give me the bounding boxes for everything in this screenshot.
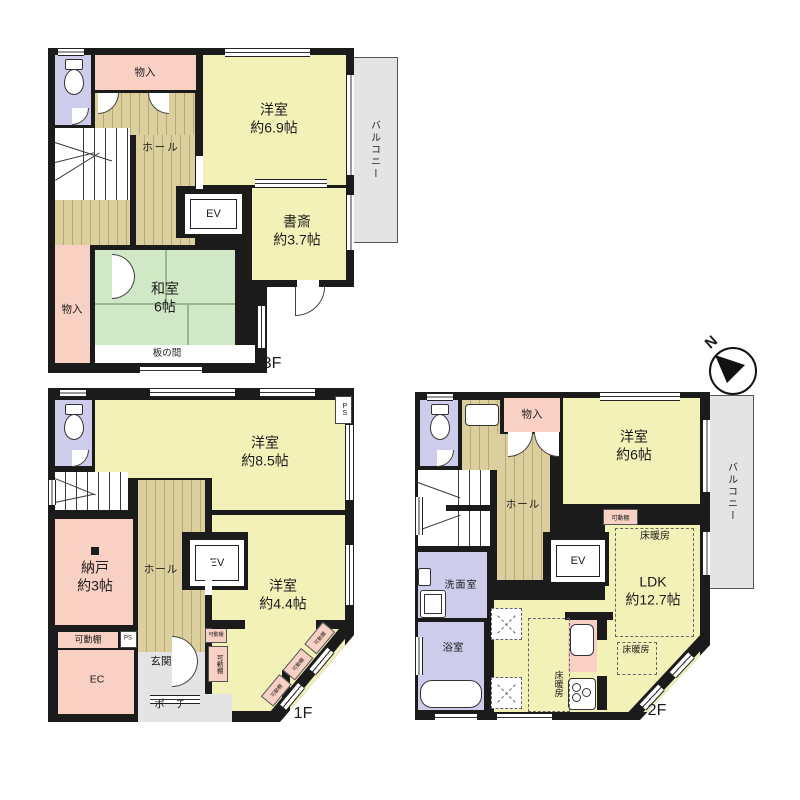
window xyxy=(435,713,477,722)
label-hall-2f: ホール xyxy=(506,498,541,511)
label-itanoma-3f: 板の間 xyxy=(153,348,182,360)
door-opening xyxy=(205,560,212,595)
label-ec-1f: EC xyxy=(90,673,105,686)
window xyxy=(600,392,680,401)
burner-icon xyxy=(572,693,581,702)
label-porch-1f: ポーチ xyxy=(154,698,186,711)
floorplan-3f: EV 物入 ホール 洋室 約6.9帖 書斎 約3.7帖 和室 6帖 xyxy=(48,48,354,373)
window xyxy=(427,393,453,401)
label-nando-1f: 納戸 約3帖 xyxy=(77,560,113,595)
stairs-2f xyxy=(418,470,490,546)
stove-icon-2f xyxy=(568,678,596,710)
kitchen-wall xyxy=(597,676,607,710)
label-ps-small-1f: PS xyxy=(124,635,132,643)
wall-stub xyxy=(212,620,245,629)
stair-line xyxy=(55,478,96,495)
label-senmen-2f: 洗面室 xyxy=(445,580,478,593)
stairs-1f xyxy=(55,472,128,510)
label-yokushitsu-2f: 浴室 xyxy=(443,641,464,654)
label-monoire-top-3f: 物入 xyxy=(135,66,156,79)
toilet-bowl-icon-1f xyxy=(64,414,84,440)
label-yoshitsu85-1f: 洋室 約8.5帖 xyxy=(241,435,288,470)
floorplan-1f: EV 可動棚 可動棚 可動棚 xyxy=(48,388,354,722)
window xyxy=(415,497,423,535)
label-washitsu-3f: 和室 6帖 xyxy=(151,281,179,316)
washer-inner xyxy=(424,594,442,614)
toilet-bowl-icon-2f xyxy=(430,414,450,440)
label-ps-corner-1f: PS xyxy=(340,403,349,417)
window xyxy=(140,366,202,375)
window xyxy=(415,637,423,675)
underfloor-hatch xyxy=(491,677,522,709)
balcony-2f: バルコニー xyxy=(708,395,754,589)
elevator-label-1f: EV xyxy=(195,545,239,581)
label-kadoudana-v2: 可動棚 xyxy=(214,654,222,674)
label-monoire-left-3f: 物入 xyxy=(62,303,83,316)
elevator-3f: EV xyxy=(183,192,244,236)
stair-line xyxy=(55,494,94,503)
balcony-3f-label: バルコニー xyxy=(367,120,382,180)
yukadanbo-area-left xyxy=(528,618,570,712)
kitchen-wall xyxy=(597,620,607,640)
window xyxy=(225,48,310,57)
label-kadoudana-1f: 可動棚 xyxy=(74,634,101,645)
burner-icon xyxy=(572,683,581,692)
washer-icon-2f xyxy=(420,590,446,618)
label-yukadanbo-left: 床暖房 xyxy=(552,671,563,698)
compass: N xyxy=(703,333,761,395)
window xyxy=(497,713,552,722)
label-yoshitsu44-1f: 洋室 約4.4帖 xyxy=(259,578,306,613)
hall-3f-under-stairs xyxy=(55,200,130,245)
window xyxy=(150,388,235,397)
door-opening xyxy=(297,280,319,287)
label-genkan-1f: 玄関 xyxy=(151,655,172,668)
elevator-1f: EV xyxy=(188,538,246,588)
label-yukadanbo-mid: 床暖房 xyxy=(622,644,649,655)
balcony-3f: バルコニー xyxy=(350,57,398,243)
bathtub-icon-2f xyxy=(420,680,482,708)
kadoudana-2f: 可動棚 xyxy=(603,509,638,525)
floorplan-image: バルコニー EV xyxy=(0,0,800,800)
toilet-bowl-icon-3f xyxy=(64,69,84,95)
stairs-3f xyxy=(55,128,130,200)
basin-icon-2f xyxy=(465,404,499,426)
balcony-2f-label: バルコニー xyxy=(724,462,739,522)
faucet-icon-2f xyxy=(418,568,431,586)
tatami-line xyxy=(187,303,189,345)
window xyxy=(345,425,354,500)
floor-label-1f: 1F xyxy=(294,704,313,724)
elevator-label-2f: EV xyxy=(556,545,600,577)
window xyxy=(345,545,354,605)
label-kadoudana-v1: 可動棚 xyxy=(208,632,223,638)
window xyxy=(260,388,315,397)
window xyxy=(48,480,56,505)
floorplan-2f: EV 可動棚 xyxy=(415,392,710,720)
label-shosai-3f: 書斎 約3.7帖 xyxy=(273,214,320,249)
nando-dot xyxy=(91,547,99,555)
stair-landing-wall xyxy=(446,505,490,511)
sliding-door xyxy=(255,179,327,188)
sink-icon-2f xyxy=(570,624,594,656)
burner-icon xyxy=(582,688,591,697)
window xyxy=(58,48,84,56)
door-arc xyxy=(295,287,325,316)
label-hall-1f: ホール xyxy=(144,563,179,576)
label-monoire-2f: 物入 xyxy=(522,408,543,421)
label-yoshitsu6-2f: 洋室 約6帖 xyxy=(616,429,652,464)
window xyxy=(257,306,266,348)
label-yukadanbo-top: 床暖房 xyxy=(640,531,670,544)
elevator-2f: EV xyxy=(549,538,607,584)
kitchen-wall xyxy=(565,612,613,620)
underfloor-hatch xyxy=(491,608,522,640)
label-yoshitsu-3f: 洋室 約6.9帖 xyxy=(250,102,297,137)
elevator-label-3f: EV xyxy=(190,199,237,229)
floor-label-3f: 3F xyxy=(263,354,282,374)
window xyxy=(60,389,86,397)
label-ldk-2f: LDK 約12.7帖 xyxy=(625,574,680,609)
floor-label-2f: 2F xyxy=(648,701,667,721)
label-hall-3f: ホール xyxy=(142,141,180,154)
door-opening xyxy=(196,156,203,189)
